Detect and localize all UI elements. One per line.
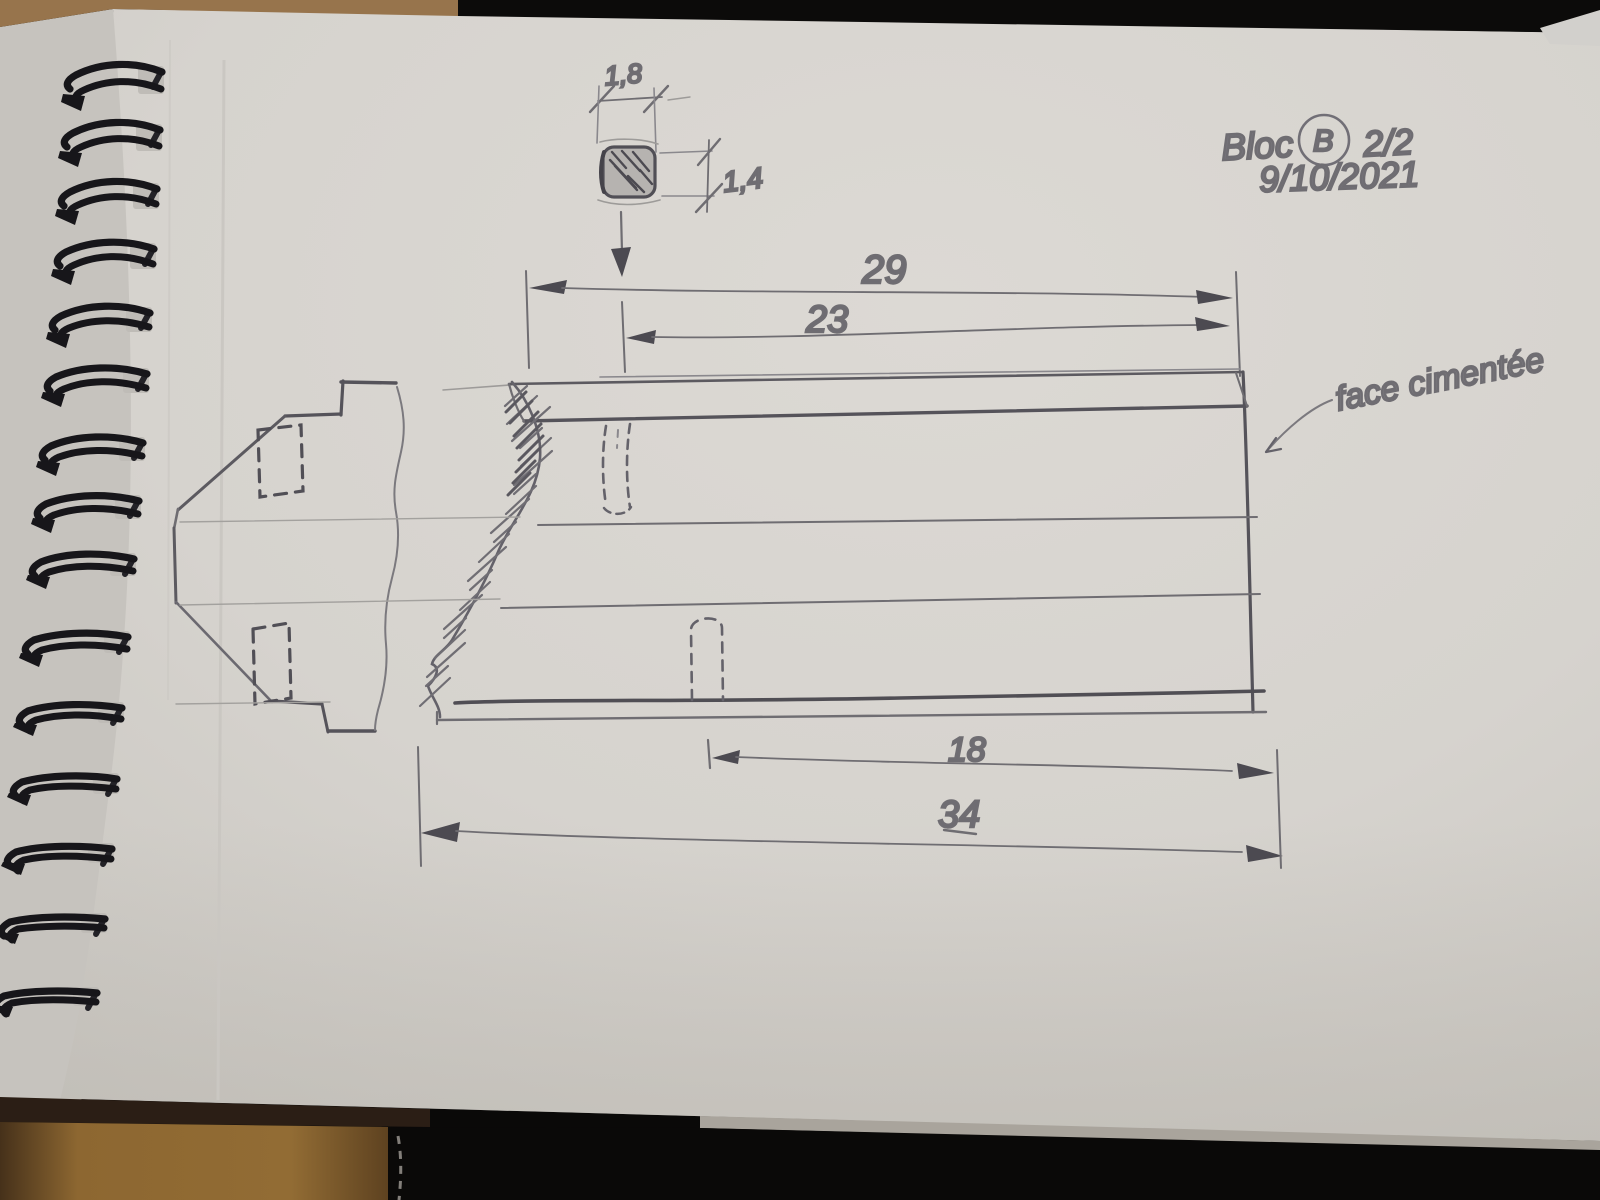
- svg-text:18: 18: [948, 731, 986, 769]
- svg-text:1,8: 1,8: [603, 58, 643, 91]
- svg-text:9/10/2021: 9/10/2021: [1258, 153, 1419, 200]
- svg-text:23: 23: [805, 299, 848, 341]
- svg-text:29: 29: [861, 248, 907, 292]
- svg-text:1,4: 1,4: [721, 162, 765, 199]
- svg-text:B: B: [1313, 123, 1334, 158]
